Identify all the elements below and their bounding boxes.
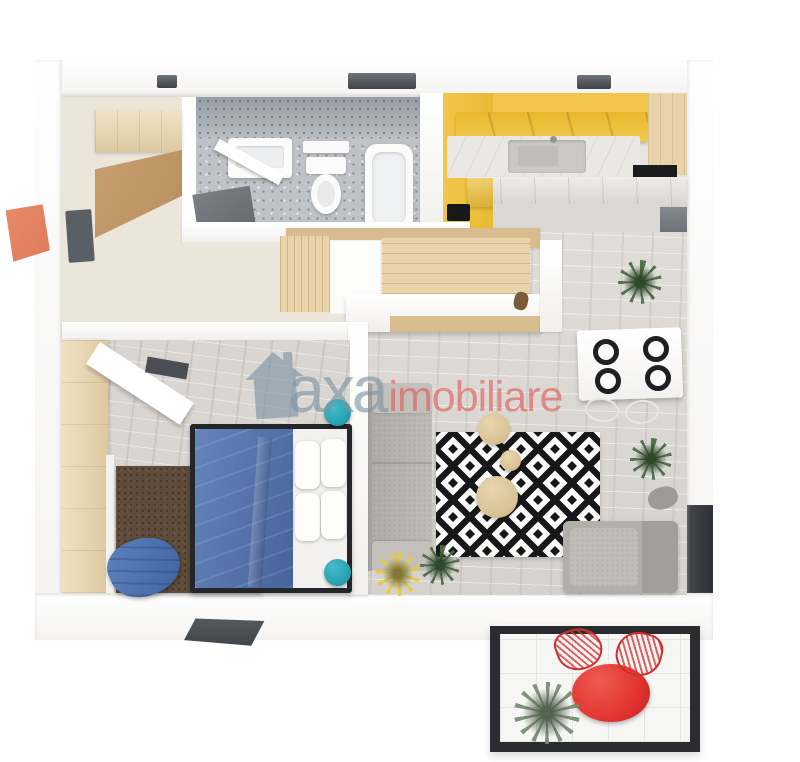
- armchair-seat: [570, 528, 638, 586]
- nightstand: [324, 399, 351, 426]
- pillow: [295, 493, 320, 541]
- kitchen-niche: [633, 165, 677, 177]
- bathroom-wall-tile: [196, 97, 420, 137]
- pillow: [321, 491, 346, 539]
- kitchen-faucet: [550, 136, 557, 143]
- door-mat: [65, 209, 95, 263]
- wall-left: [35, 60, 62, 640]
- wall-bedroom-top: [62, 322, 352, 340]
- wardrobe-wood-panel: [280, 236, 330, 312]
- cooktop: [447, 204, 470, 221]
- toilet: [311, 174, 341, 214]
- dining-table: [577, 327, 683, 401]
- dining-chair: [595, 368, 621, 394]
- potted-plant: [618, 260, 662, 304]
- potted-plant: [630, 438, 672, 480]
- wall-hallway-dining: [540, 240, 562, 332]
- bathroom-shelf: [303, 141, 349, 153]
- wardrobe-plinth: [390, 316, 540, 332]
- window-icon: [577, 75, 611, 89]
- window-sill: [184, 616, 266, 647]
- pillow: [321, 439, 346, 487]
- kitchen-sink: [508, 140, 586, 173]
- kitchen-wood-counter: [467, 177, 687, 207]
- armchair-backrest: [642, 521, 678, 593]
- dining-chair: [645, 365, 671, 391]
- entry-cabinet: [95, 110, 182, 152]
- bed-duvet: [195, 429, 293, 588]
- coffee-table: [478, 413, 510, 445]
- window-icon: [157, 75, 177, 88]
- coffee-table: [476, 476, 518, 518]
- window-icon: [348, 73, 416, 89]
- balcony-plant: [514, 682, 580, 744]
- balcony-door-glass: [687, 505, 713, 593]
- potted-plant: [420, 545, 460, 585]
- yellow-flower-plant: [376, 552, 420, 596]
- sofa-cushion-seam: [372, 462, 432, 464]
- bedroom-wardrobe: [62, 340, 108, 593]
- dining-chair: [593, 339, 619, 365]
- dining-chair: [643, 336, 669, 362]
- toilet-tank: [306, 157, 346, 174]
- kitchen-wood-cabinet: [648, 93, 687, 175]
- sofa-cushion: [372, 383, 432, 413]
- pillow: [295, 441, 320, 489]
- wall-bathroom-kitchen: [420, 93, 443, 232]
- bathtub: [365, 144, 413, 232]
- balcony: [490, 626, 700, 752]
- floorplan-render: axa imobiliare: [0, 0, 800, 762]
- coffee-table: [500, 450, 521, 471]
- nightstand: [324, 559, 351, 586]
